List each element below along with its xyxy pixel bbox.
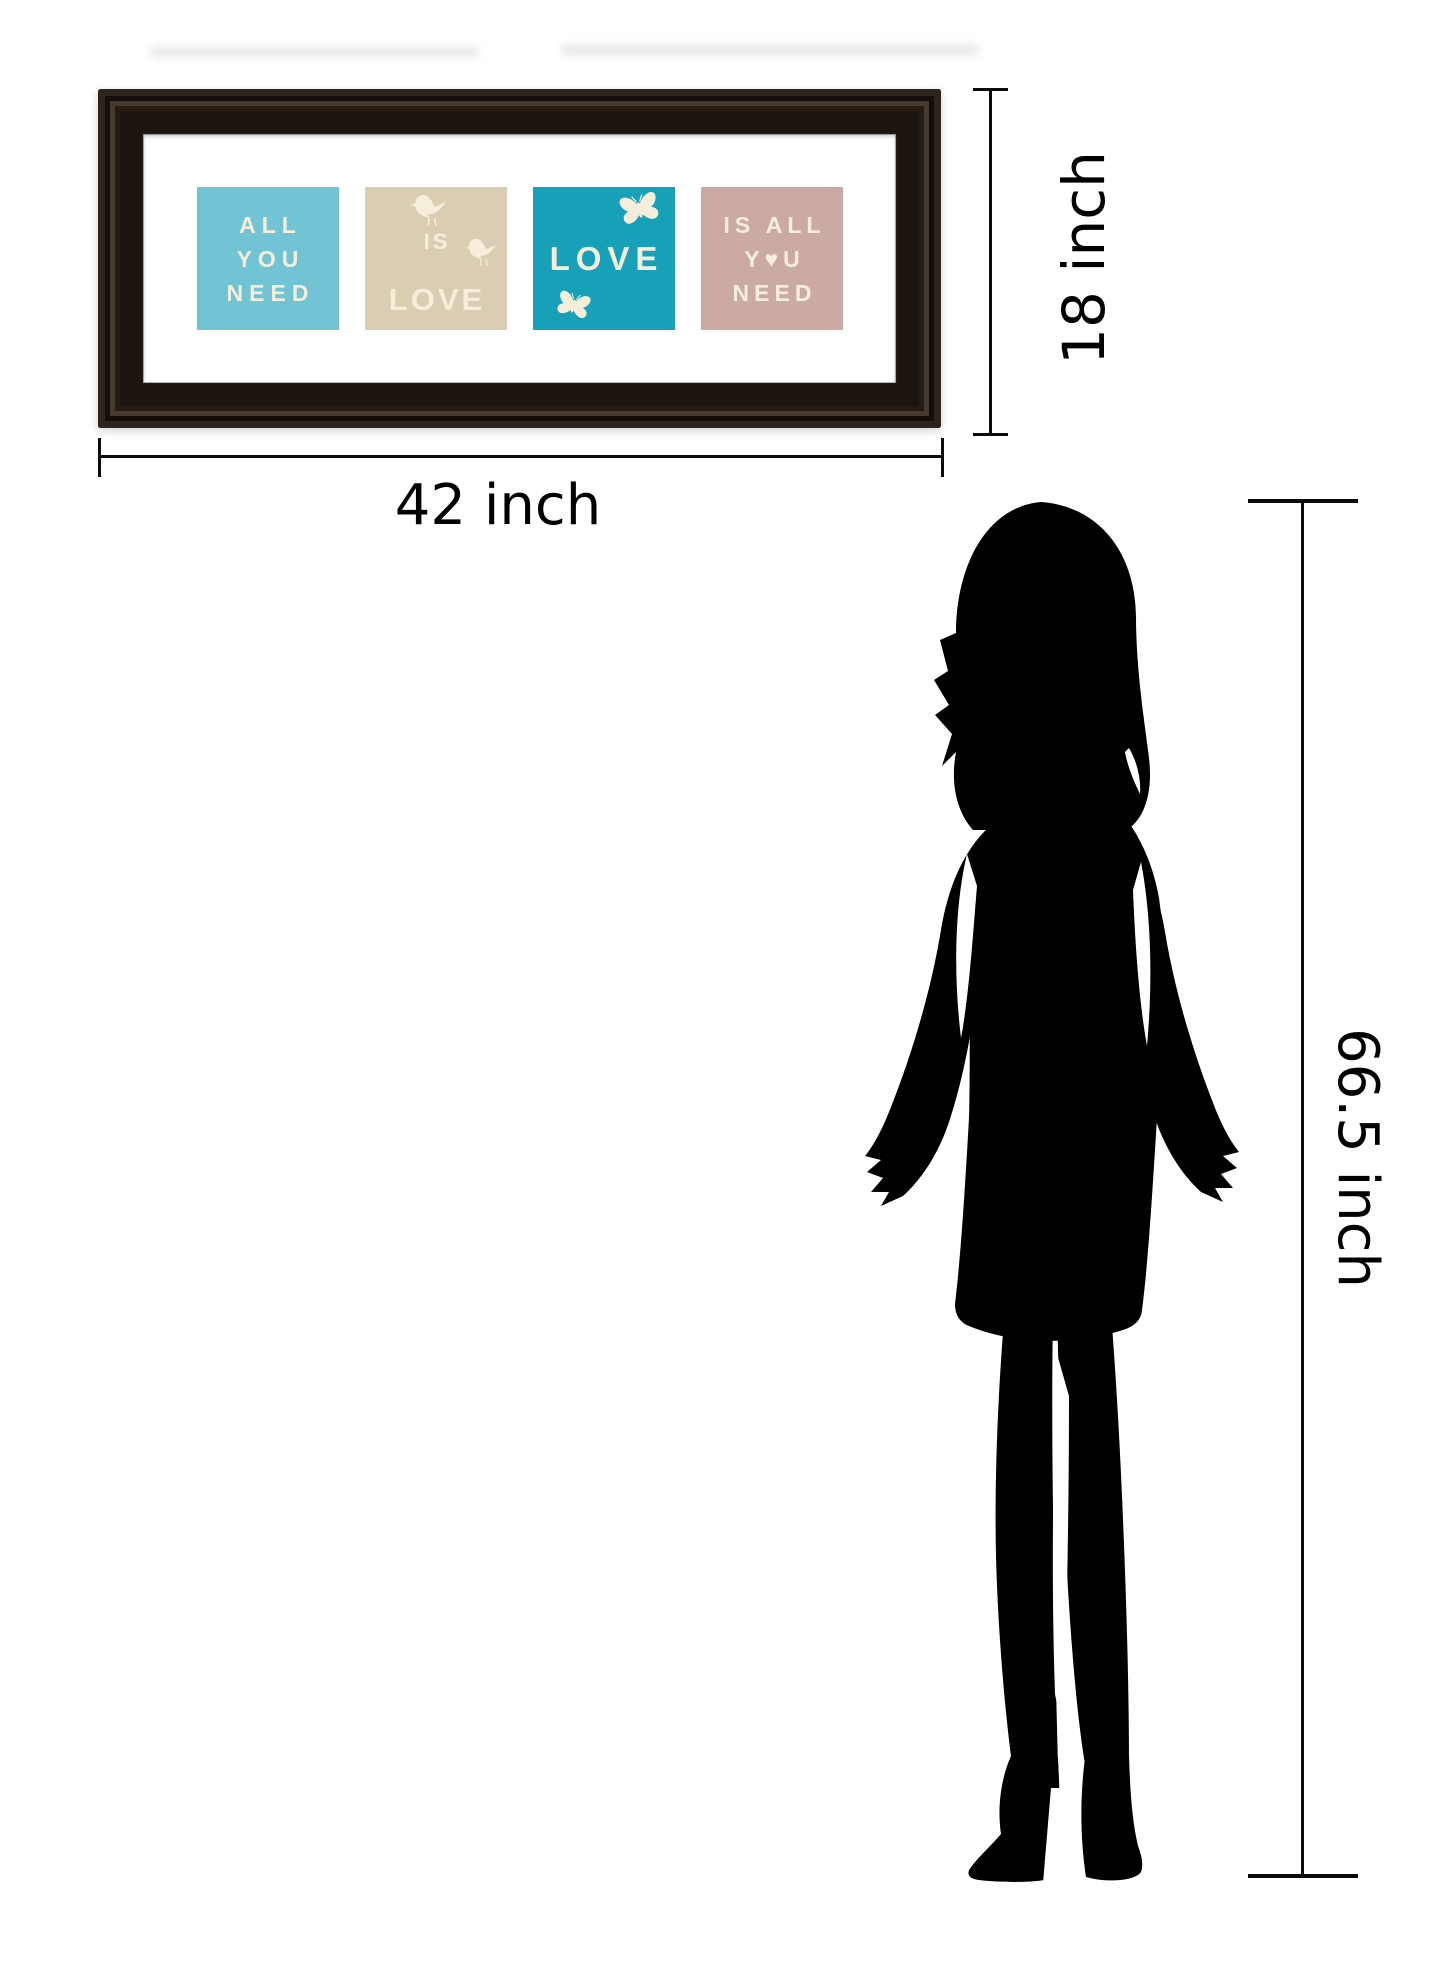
person-height-dimension-line bbox=[1301, 500, 1304, 1878]
art-panel-is-all-you-need: IS ALL Y♥U NEED bbox=[701, 187, 843, 330]
art-panel-is-love: IS LOVE bbox=[365, 187, 507, 330]
width-dimension-tick-left bbox=[98, 438, 101, 477]
shadow-artifact bbox=[560, 44, 980, 56]
height-dimension-tick-top bbox=[973, 88, 1008, 91]
width-dimension-label: 42 inch bbox=[338, 476, 658, 536]
width-dimension-line bbox=[98, 455, 944, 458]
product-dimensions-diagram: ALL YOU NEED IS bbox=[0, 0, 1445, 1973]
picture-frame: ALL YOU NEED IS bbox=[98, 89, 941, 428]
panel-text-line: LOVE bbox=[533, 240, 675, 278]
panel-text-line: NEED bbox=[221, 276, 315, 310]
panel-text-line: YOU bbox=[231, 242, 305, 276]
panel-text-line: IS ALL bbox=[718, 208, 826, 242]
butterfly-icon bbox=[615, 188, 664, 234]
height-dimension-tick-bottom bbox=[973, 433, 1008, 436]
art-panel-love: LOVE bbox=[533, 187, 675, 330]
panel-text-line-heart: Y♥U bbox=[738, 242, 805, 276]
width-dimension-tick-right bbox=[941, 438, 944, 477]
person-height-tick-bottom bbox=[1248, 1874, 1358, 1878]
height-dimension-label: 18 inch bbox=[1048, 108, 1120, 408]
person-height-dimension-label: 66.5 inch bbox=[1321, 988, 1393, 1328]
panel-text-line: LOVE bbox=[365, 282, 507, 318]
height-dimension-line bbox=[989, 90, 992, 436]
woman-silhouette bbox=[845, 498, 1255, 1883]
panel-text-line: ALL bbox=[233, 208, 302, 242]
shadow-artifact bbox=[150, 46, 480, 58]
bird-icon bbox=[411, 193, 449, 227]
frame-mat: ALL YOU NEED IS bbox=[143, 134, 896, 383]
bird-icon bbox=[465, 237, 499, 267]
butterfly-icon bbox=[551, 287, 594, 327]
person-height-tick-top bbox=[1248, 499, 1358, 503]
art-panel-all-you-need: ALL YOU NEED bbox=[197, 187, 339, 330]
panel-text-line: NEED bbox=[727, 276, 817, 310]
